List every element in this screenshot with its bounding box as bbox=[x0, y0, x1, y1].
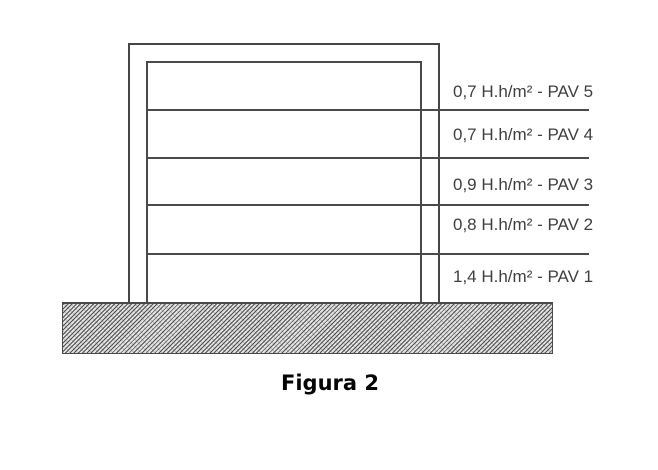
floor-label-pav2: 0,8 H.h/m² - PAV 2 bbox=[453, 216, 593, 234]
ground-hatch bbox=[62, 302, 553, 354]
figure-canvas: 0,7 H.h/m² - PAV 5 0,7 H.h/m² - PAV 4 0,… bbox=[0, 0, 658, 470]
figure-caption: Figura 2 bbox=[281, 371, 379, 395]
floor-slab-line-pav4 bbox=[147, 157, 589, 159]
building-inner-frame bbox=[146, 61, 422, 303]
floor-label-pav4: 0,7 H.h/m² - PAV 4 bbox=[453, 126, 593, 144]
floor-label-pav5: 0,7 H.h/m² - PAV 5 bbox=[453, 83, 593, 101]
floor-label-pav3: 0,9 H.h/m² - PAV 3 bbox=[453, 176, 593, 194]
floor-slab-line-pav5 bbox=[147, 109, 589, 111]
floor-label-pav1: 1,4 H.h/m² - PAV 1 bbox=[453, 268, 593, 286]
floor-slab-line-pav3 bbox=[147, 204, 589, 206]
floor-slab-line-pav2 bbox=[147, 253, 589, 255]
